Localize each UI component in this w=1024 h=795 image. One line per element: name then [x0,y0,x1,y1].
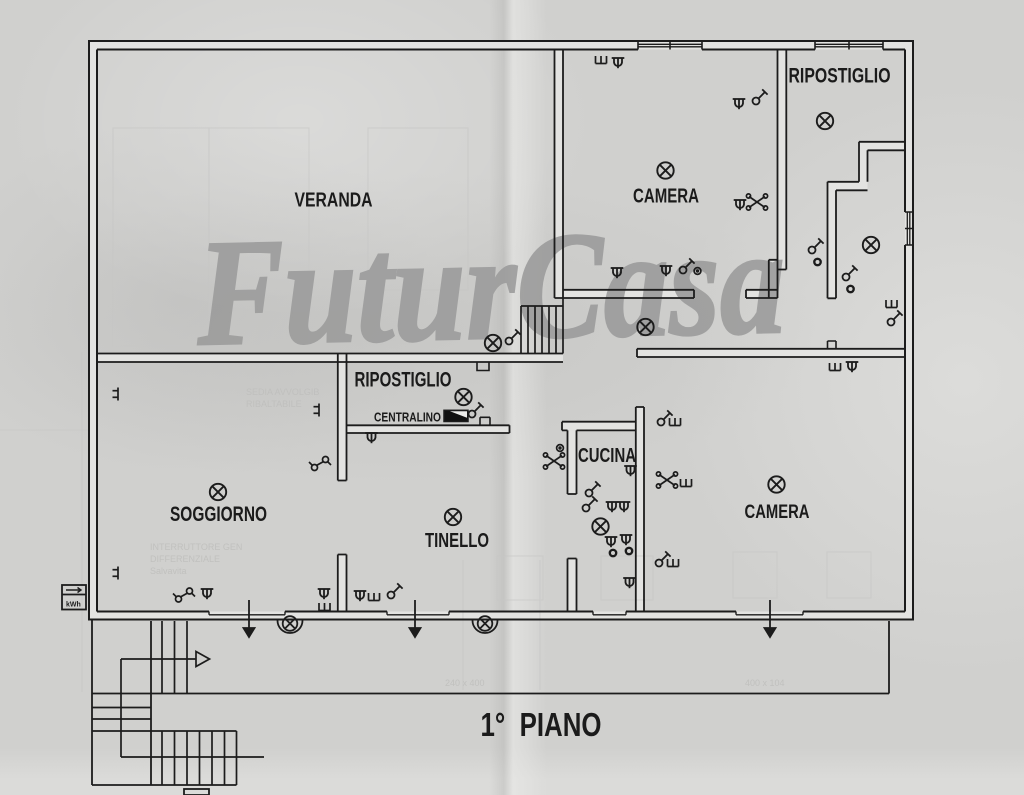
svg-text:SEDIA AVVOLGIB: SEDIA AVVOLGIB [246,387,319,397]
svg-text:CENTRALINO: CENTRALINO [374,409,441,424]
svg-text:CAMERA: CAMERA [745,502,810,523]
svg-text:CUCINA: CUCINA [578,445,636,467]
svg-text:INTERRUTTORE GEN: INTERRUTTORE GEN [150,542,242,552]
svg-text:400 x 104: 400 x 104 [745,678,785,688]
svg-text:RIPOSTIGLIO: RIPOSTIGLIO [789,65,891,88]
svg-text:1° PIANO: 1° PIANO [481,706,602,743]
svg-text:kWh: kWh [66,602,81,609]
svg-text:RIBALTABILE: RIBALTABILE [246,399,302,409]
svg-text:240 x 400: 240 x 400 [445,678,485,688]
svg-text:CAMERA: CAMERA [633,185,699,208]
svg-text:SOGGIORNO: SOGGIORNO [170,503,267,526]
svg-text:RIPOSTIGLIO: RIPOSTIGLIO [355,369,452,392]
svg-text:VERANDA: VERANDA [295,190,373,212]
svg-text:Salvavita: Salvavita [150,566,187,576]
svg-text:TINELLO: TINELLO [425,530,489,552]
svg-text:DIFFERENZIALE: DIFFERENZIALE [150,554,220,564]
